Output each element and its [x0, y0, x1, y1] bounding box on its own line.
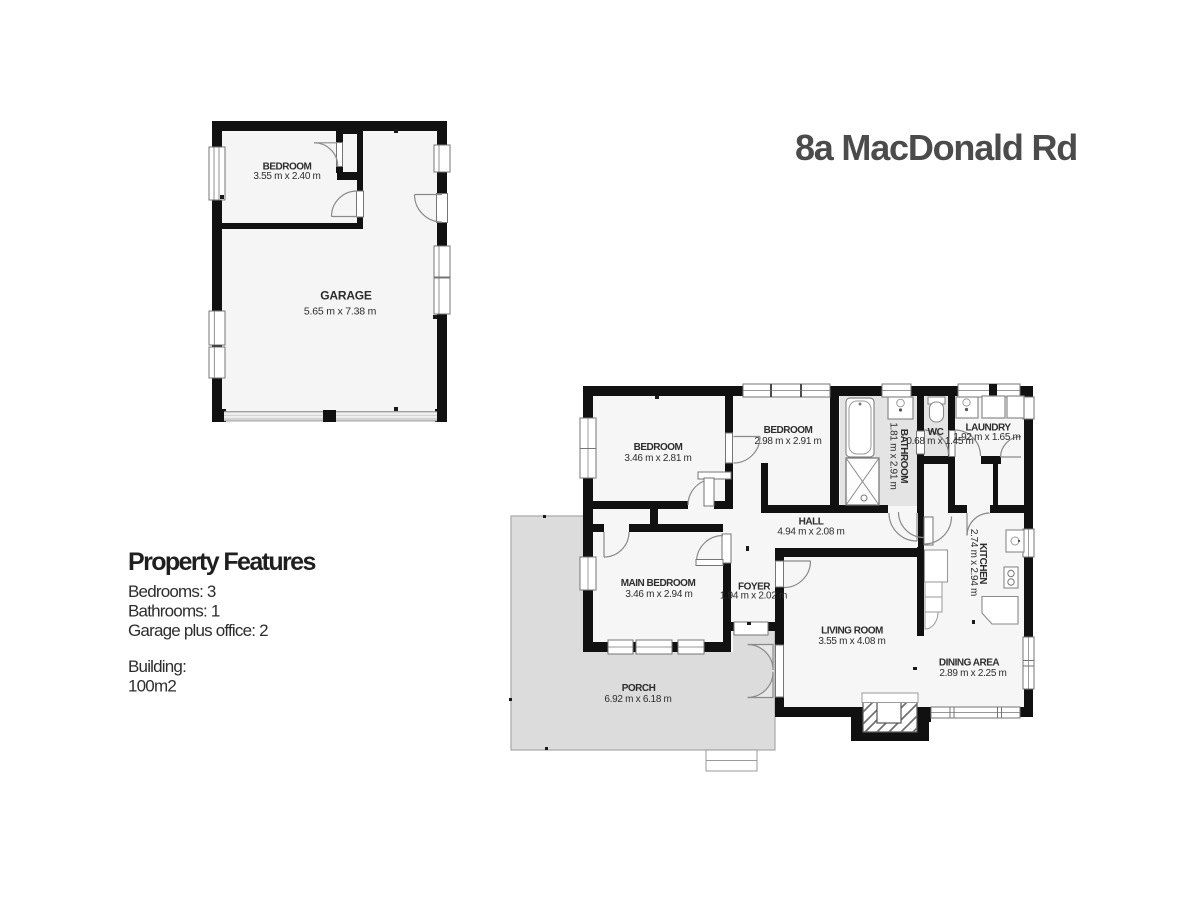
svg-text:Bedrooms: 3: Bedrooms: 3 — [128, 582, 216, 601]
svg-text:1.81 m x 2.91 m: 1.81 m x 2.91 m — [888, 422, 899, 489]
svg-text:1.94 m x 2.02 m: 1.94 m x 2.02 m — [720, 591, 787, 602]
svg-text:8a MacDonald Rd: 8a MacDonald Rd — [795, 127, 1077, 168]
svg-text:DINING AREA: DINING AREA — [939, 658, 1000, 669]
svg-text:Building:: Building: — [128, 657, 186, 676]
svg-text:MAIN BEDROOM: MAIN BEDROOM — [621, 578, 696, 589]
svg-text:3.55 m x 4.08 m: 3.55 m x 4.08 m — [818, 636, 885, 647]
svg-text:LIVING ROOM: LIVING ROOM — [821, 626, 883, 637]
svg-text:PORCH: PORCH — [622, 683, 656, 694]
svg-text:2.98 m x 2.91 m: 2.98 m x 2.91 m — [754, 436, 821, 447]
svg-text:1.92 m x 1.65 m: 1.92 m x 1.65 m — [953, 432, 1020, 443]
svg-text:Property Features: Property Features — [128, 548, 315, 576]
svg-text:Garage plus office: 2: Garage plus office: 2 — [128, 621, 268, 640]
svg-text:3.46 m x 2.94 m: 3.46 m x 2.94 m — [625, 589, 692, 600]
svg-text:BEDROOM: BEDROOM — [764, 425, 813, 436]
svg-text:BEDROOM: BEDROOM — [634, 442, 683, 453]
svg-text:GARAGE: GARAGE — [320, 289, 372, 303]
svg-text:100m2: 100m2 — [128, 677, 176, 696]
svg-text:BATHROOM: BATHROOM — [898, 429, 909, 483]
svg-text:3.46 m x 2.81 m: 3.46 m x 2.81 m — [624, 453, 691, 464]
svg-text:Bathrooms: 1: Bathrooms: 1 — [128, 602, 220, 621]
svg-text:2.89 m x 2.25 m: 2.89 m x 2.25 m — [939, 668, 1006, 679]
svg-text:6.92 m x 6.18 m: 6.92 m x 6.18 m — [604, 694, 671, 705]
svg-text:4.94 m x 2.08 m: 4.94 m x 2.08 m — [777, 527, 844, 538]
svg-text:3.55 m x 2.40 m: 3.55 m x 2.40 m — [253, 171, 320, 182]
svg-text:2.74 m x 2.94 m: 2.74 m x 2.94 m — [968, 529, 979, 596]
svg-text:5.65 m x 7.38 m: 5.65 m x 7.38 m — [304, 306, 377, 318]
